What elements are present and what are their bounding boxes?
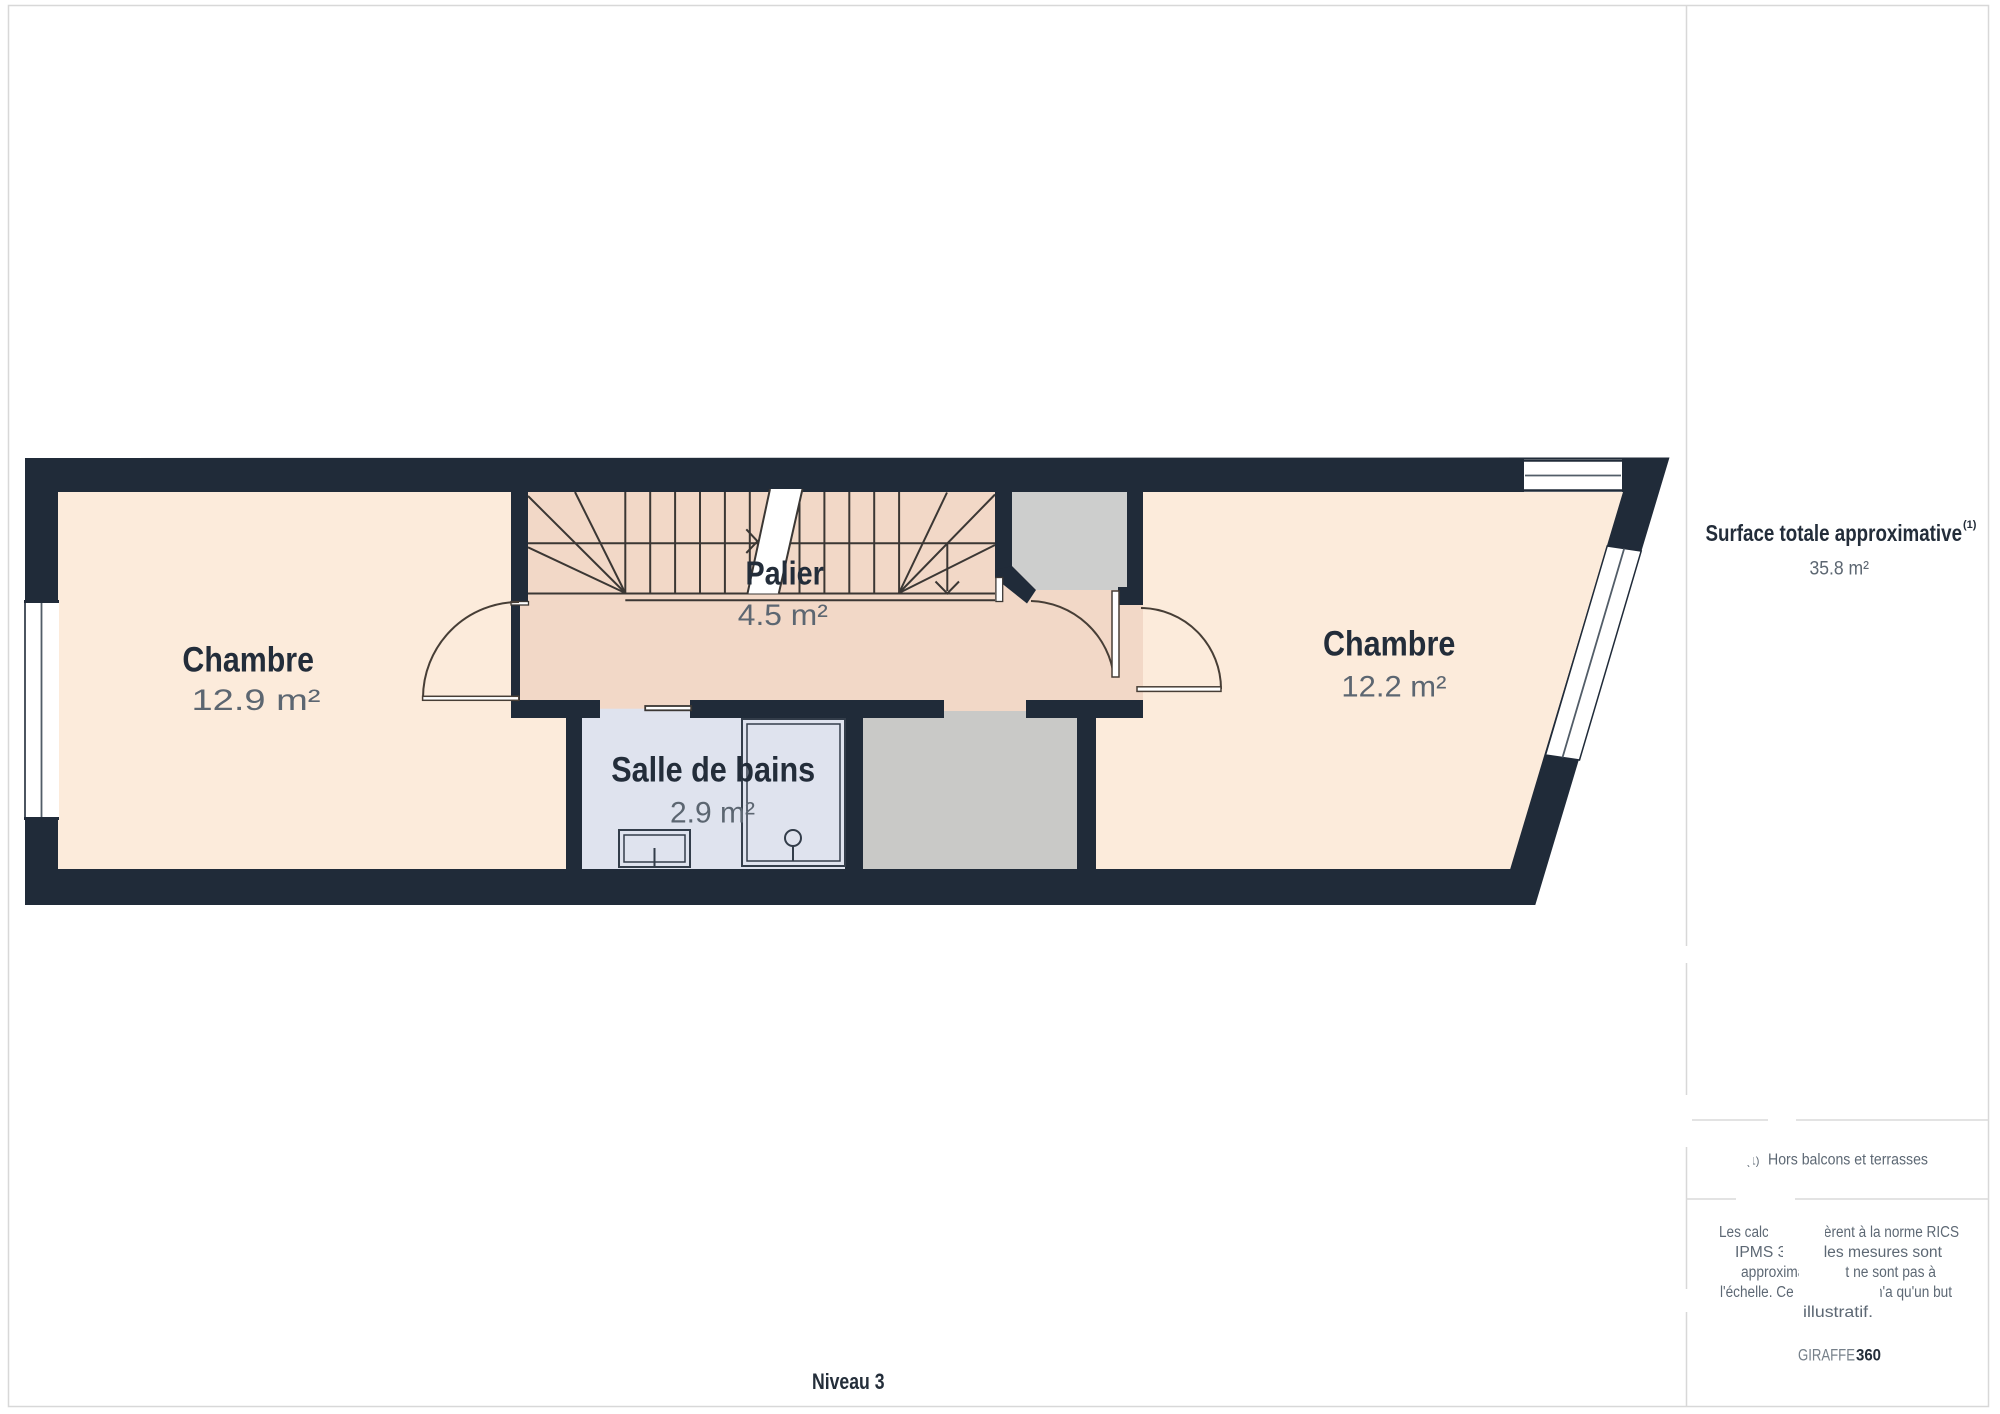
svg-text:Palier: Palier <box>746 555 824 592</box>
svg-text:Les calculs se réfèrent à la n: Les calculs se réfèrent à la norme RICS <box>1719 1224 1959 1241</box>
svg-text:IPMS 3C, et les mesures sont: IPMS 3C, et les mesures sont <box>1735 1244 1943 1261</box>
svg-text:2.9 m²: 2.9 m² <box>670 797 755 830</box>
svg-text:4.5 m²: 4.5 m² <box>738 599 828 632</box>
svg-text:illustratif.: illustratif. <box>1803 1304 1873 1321</box>
svg-text:12.2 m²: 12.2 m² <box>1341 671 1446 704</box>
svg-text:GIRAFFE: GIRAFFE <box>1798 1347 1855 1365</box>
svg-text:Chambre: Chambre <box>1323 625 1455 664</box>
svg-text:(1): (1) <box>1963 519 1977 531</box>
svg-text:12.9 m²: 12.9 m² <box>192 684 321 717</box>
svg-text:360: 360 <box>1856 1347 1881 1365</box>
svg-text:Niveau 3: Niveau 3 <box>812 1369 885 1394</box>
svg-text:Chambre: Chambre <box>182 641 314 680</box>
svg-text:Surface totale approximative: Surface totale approximative <box>1706 520 1963 546</box>
svg-text:35.8 m²: 35.8 m² <box>1810 558 1870 580</box>
svg-text:Salle de bains: Salle de bains <box>611 750 815 789</box>
svg-text:Hors balcons et terrasses: Hors balcons et terrasses <box>1768 1152 1928 1169</box>
